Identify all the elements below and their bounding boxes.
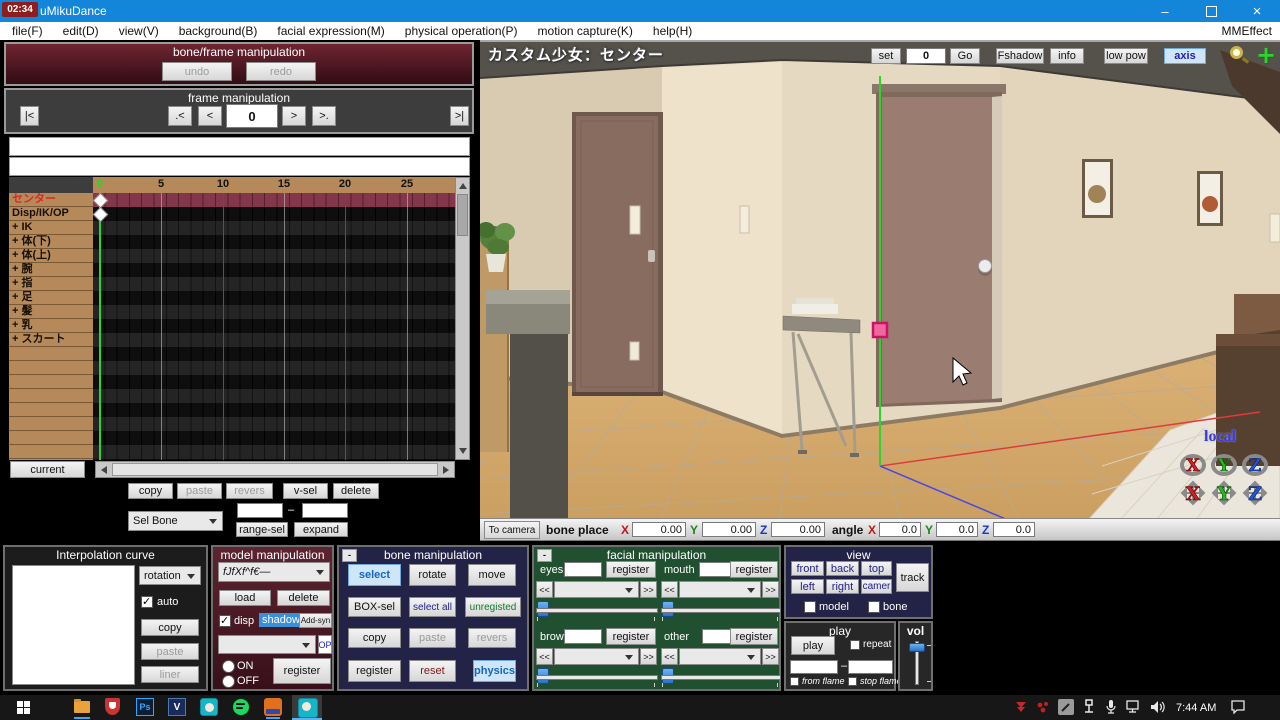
notification-center-icon[interactable]	[1230, 700, 1246, 714]
scroll-right-icon[interactable]	[443, 466, 449, 474]
undo-button[interactable]: undo	[162, 62, 232, 81]
view-left-button[interactable]: left	[791, 579, 824, 594]
timeline-tick: 10	[215, 178, 231, 190]
scroll-down-icon[interactable]	[459, 448, 467, 454]
3d-scene	[480, 42, 1280, 518]
model-register-button[interactable]: register	[273, 658, 331, 684]
frame-last-button[interactable]: >|	[450, 106, 469, 126]
unregisted-button[interactable]: unregisted	[465, 597, 521, 617]
brow-slider[interactable]	[536, 675, 658, 680]
rotate-x-control: X	[1182, 456, 1204, 476]
other-next-button[interactable]: >>	[762, 648, 779, 665]
angle-y-label: Y	[925, 523, 933, 537]
corner-wall	[662, 62, 782, 436]
eyes-next-button[interactable]: >>	[640, 581, 657, 598]
timeline-row-labels: センターDisp/IK/OP+ IK+ 体(下)+ 体(上)+ 腕+ 指+ 足+…	[9, 193, 93, 460]
taskbar-clock[interactable]: 7:44 AM	[1176, 695, 1216, 720]
interp-copy-button[interactable]: copy	[141, 619, 199, 636]
magnifier-icon[interactable]	[1230, 46, 1243, 59]
tray-network-icon[interactable]	[1126, 700, 1142, 714]
current-frame-button[interactable]: current	[10, 461, 85, 478]
frame-list-box-bottom[interactable]	[9, 157, 470, 176]
timeline-row-label[interactable]	[9, 445, 93, 459]
taskbar: Ps V 7:44 AM	[0, 695, 1280, 720]
model-manipulation-panel: model manipulation fJfXf^f€― load delete…	[211, 545, 334, 691]
taskbar-item-mmd[interactable]	[200, 698, 218, 716]
tl-revers-button[interactable]: revers	[226, 483, 273, 499]
taskbar-item-mmd-active[interactable]	[292, 695, 322, 720]
bone-manipulation-panel: - bone manipulation select rotate move B…	[337, 545, 529, 691]
angle-x-input[interactable]: 0.0	[879, 522, 921, 537]
bone-checkbox-label: bone	[883, 601, 907, 613]
light-switch	[1270, 214, 1280, 242]
svg-text:X: X	[1186, 456, 1200, 476]
facial-manipulation-panel: - facial manipulation eyes register << >…	[532, 545, 781, 691]
window-title: uMikuDance	[40, 0, 107, 22]
select-all-button[interactable]: select all	[409, 597, 456, 617]
timeline-row-label[interactable]: + 体(上)	[9, 249, 93, 263]
brow-prev-button[interactable]: <<	[536, 648, 553, 665]
menu-item-mmeffect[interactable]: MMEffect	[1222, 22, 1272, 40]
bone-register-button[interactable]: register	[348, 660, 401, 682]
mouth-prev-button[interactable]: <<	[661, 581, 678, 598]
mouth-register-button[interactable]: register	[730, 561, 778, 578]
tray-volume-icon[interactable]	[1150, 700, 1166, 714]
local-mode-label[interactable]: local	[1204, 428, 1236, 446]
model-manip-title: model manipulation	[213, 548, 332, 562]
timeline-row-label[interactable]: + 指	[9, 277, 93, 291]
other-prev-button[interactable]: <<	[661, 648, 678, 665]
tray-microphone-icon[interactable]	[1104, 699, 1118, 715]
frame-next-button[interactable]: >	[282, 106, 306, 126]
box-sel-button[interactable]: BOX-sel	[348, 597, 401, 617]
model-name-label: カスタム少女：センター	[488, 44, 664, 65]
go-button[interactable]: Go	[950, 48, 980, 64]
interpolation-channel-dropdown[interactable]: rotation	[139, 566, 201, 585]
bone-manip-title: bone manipulation	[339, 548, 527, 562]
menu-item[interactable]: edit(D)	[53, 22, 109, 40]
timeline-tick: 15	[276, 178, 292, 190]
timeline-tick: 20	[337, 178, 353, 190]
taskbar-item-v-app[interactable]: V	[168, 698, 186, 716]
timeline-row-label[interactable]: + 乳	[9, 319, 93, 333]
start-button[interactable]	[0, 695, 46, 720]
eyes-slider[interactable]	[536, 608, 658, 613]
svg-text:Z: Z	[1248, 483, 1262, 505]
angle-y-input[interactable]: 0.0	[936, 522, 978, 537]
timeline-tick: 5	[153, 178, 169, 190]
tl-copy-button[interactable]: copy	[128, 483, 173, 499]
menu-item[interactable]: file(F)	[2, 22, 53, 40]
angle-z-label: Z	[982, 523, 989, 537]
place-y-input[interactable]: 0.00	[702, 522, 756, 537]
light-switch	[630, 206, 640, 234]
eyes-register-button[interactable]: register	[606, 561, 656, 578]
view-top-button[interactable]: top	[861, 561, 892, 576]
timeline-row-label[interactable]	[9, 431, 93, 445]
auto-checkbox[interactable]	[141, 596, 153, 608]
model-select-dropdown[interactable]: fJfXf^f€―	[218, 562, 330, 582]
eyes-label: eyes	[540, 564, 563, 576]
timeline-row-label[interactable]: Disp/IK/OP	[9, 207, 93, 221]
place-x-input[interactable]: 0.00	[632, 522, 686, 537]
axis-rotate-controls[interactable]: X Y Z	[1180, 452, 1268, 478]
range-sel-button[interactable]: range-sel	[236, 522, 288, 537]
view-camer-button[interactable]: camer	[861, 579, 892, 594]
minimize-button[interactable]: –	[1142, 0, 1188, 22]
frame-prev-button[interactable]: <	[198, 106, 222, 126]
mouth-next-button[interactable]: >>	[762, 581, 779, 598]
menu-bar: file(F)edit(D)view(V)background(B)facial…	[0, 22, 1280, 40]
orange-app-icon	[266, 709, 280, 714]
timeline-row-label[interactable]	[9, 417, 93, 431]
place-z-label: Z	[760, 523, 767, 537]
tray-red-dots-icon[interactable]	[1036, 700, 1050, 714]
frame-panel-title: frame manipulation	[6, 91, 472, 105]
selected-bone-marker	[873, 323, 887, 337]
vol-panel: vol	[898, 621, 933, 691]
miku-icon	[205, 703, 214, 712]
place-y-label: Y	[690, 523, 698, 537]
view-right-button[interactable]: right	[826, 579, 859, 594]
view-title: view	[786, 548, 931, 562]
timeline-row-label[interactable]: + 髪	[9, 305, 93, 319]
interpolation-title: Interpolation curve	[5, 548, 206, 562]
tray-download-icon[interactable]	[1014, 700, 1028, 714]
folder-icon	[74, 701, 90, 713]
accessory-dropdown[interactable]	[218, 635, 316, 654]
facial-title: facial manipulation	[534, 548, 779, 562]
timeline-row-label[interactable]: + 足	[9, 291, 93, 305]
eyes-prev-button[interactable]: <<	[536, 581, 553, 598]
stop-flame-checkbox[interactable]	[848, 677, 857, 686]
move-x-control: X	[1182, 482, 1204, 505]
move-z-control: Z	[1244, 482, 1266, 505]
mouth-morph-dropdown[interactable]	[679, 581, 761, 598]
title-bar: 02:34 uMikuDance – ×	[0, 0, 1280, 22]
other-register-button[interactable]: register	[730, 628, 778, 645]
frame-line-5	[161, 193, 162, 460]
disp-label: disp	[234, 615, 254, 627]
view-track-button[interactable]: track	[896, 563, 929, 592]
eyes-value-input[interactable]	[564, 562, 602, 577]
maximize-icon	[1206, 6, 1217, 17]
model-delete-button[interactable]: delete	[277, 590, 330, 606]
off-label: OFF	[237, 675, 259, 687]
tl-delete-button[interactable]: delete	[333, 483, 379, 499]
bone-revers-button[interactable]: revers	[468, 628, 516, 648]
other-slider[interactable]	[661, 675, 781, 680]
menu-items: file(F)edit(D)view(V)background(B)facial…	[2, 22, 702, 40]
vol-title: vol	[900, 624, 931, 638]
taskbar-item-orange-app[interactable]	[264, 698, 282, 716]
center-door	[872, 84, 1006, 407]
tl-paste-button[interactable]: paste	[177, 483, 222, 499]
timeline-hscrollbar[interactable]	[95, 461, 455, 478]
set-button[interactable]: set	[871, 48, 901, 64]
left-door	[572, 112, 663, 396]
place-x-label: X	[621, 523, 629, 537]
bone-status-bar: To camera bone place X 0.00 Y 0.00 Z 0.0…	[480, 518, 1280, 541]
interp-paste-button[interactable]: paste	[141, 643, 199, 660]
redo-button[interactable]: redo	[246, 62, 316, 81]
tray-usb-icon[interactable]	[1082, 699, 1096, 715]
to-camera-button[interactable]: To camera	[484, 521, 540, 539]
timeline-row-label[interactable]: + IK	[9, 221, 93, 235]
bone-move-button[interactable]: move	[468, 564, 516, 586]
bone-place-label: bone place	[546, 523, 609, 537]
viewport-frame-input[interactable]: 0	[906, 48, 946, 64]
off-radio[interactable]	[222, 675, 235, 688]
timeline-row-label[interactable]: + 腕	[9, 263, 93, 277]
svg-text:X: X	[1186, 483, 1201, 505]
frame-line-10	[223, 193, 224, 460]
shadow-toggle[interactable]: shadow	[259, 613, 303, 627]
axis-move-controls[interactable]: X Y Z	[1180, 480, 1268, 506]
on-radio[interactable]	[222, 660, 235, 673]
menu-item[interactable]: view(V)	[109, 22, 169, 40]
frame-line-25	[407, 193, 408, 460]
angle-x-label: X	[868, 523, 876, 537]
keyframe-disp-ik-op[interactable]	[93, 207, 108, 223]
mouth-label: mouth	[664, 564, 695, 576]
angle-z-input[interactable]: 0.0	[993, 522, 1035, 537]
play-range-dash: –	[841, 660, 847, 672]
svg-text:Z: Z	[1249, 456, 1261, 476]
frame-manipulation-panel: frame manipulation |< .< < 0 > >. >|	[4, 88, 474, 134]
other-morph-dropdown[interactable]	[679, 648, 761, 665]
frame-next-key-button[interactable]: >.	[312, 106, 336, 126]
explorer-open-indicator	[74, 717, 90, 719]
orange-app-open-indicator	[266, 717, 280, 719]
brow-value-input[interactable]	[564, 629, 602, 644]
timeline-tick: 0	[92, 178, 108, 190]
view-back-button[interactable]: back	[826, 561, 859, 576]
timeline-vscrollbar[interactable]	[455, 177, 470, 460]
view-panel: view front back top track left right cam…	[784, 545, 933, 619]
menu-item[interactable]: facial expression(M)	[267, 22, 394, 40]
brow-morph-dropdown[interactable]	[554, 648, 639, 665]
taskbar-item-photoshop[interactable]: Ps	[136, 698, 154, 716]
fshadow-button[interactable]: Fshadow	[996, 48, 1044, 64]
scroll-left-icon[interactable]	[101, 466, 107, 474]
frame-first-button[interactable]: |<	[20, 106, 39, 126]
close-button[interactable]: ×	[1234, 0, 1280, 22]
taskbar-item-spotify[interactable]	[232, 698, 250, 716]
interpolation-canvas[interactable]	[12, 565, 135, 685]
timeline-row-label[interactable]	[9, 389, 93, 403]
vscroll-thumb[interactable]	[457, 194, 468, 236]
tray-pen-icon[interactable]	[1058, 699, 1074, 715]
timeline-row-label[interactable]	[9, 375, 93, 389]
view-front-button[interactable]: front	[791, 561, 824, 576]
frame-line-20	[345, 193, 346, 460]
viewport[interactable]: カスタム少女：センター set 0 Go Fshadow info low po…	[480, 40, 1280, 518]
timeline-row-label[interactable]	[9, 347, 93, 361]
timeline: 0510152025 センターDisp/IK/OP+ IK+ 体(下)+ 体(上…	[9, 177, 470, 478]
timeline-row-label[interactable]: + スカート	[9, 333, 93, 347]
range-start-input[interactable]	[237, 503, 283, 518]
timeline-corner-cell	[9, 177, 93, 193]
other-label: other	[664, 631, 689, 643]
menu-item[interactable]: motion capture(K)	[528, 22, 643, 40]
timeline-row-label[interactable]: センター	[9, 193, 93, 207]
bone-rotate-button[interactable]: rotate	[409, 564, 456, 586]
frame-line-15	[284, 193, 285, 460]
timeline-row-label[interactable]	[9, 361, 93, 375]
range-dash: –	[288, 504, 294, 516]
range-end-input[interactable]	[302, 503, 348, 518]
sel-bone-dropdown[interactable]: Sel Bone	[128, 511, 223, 531]
bone-reset-button[interactable]: reset	[409, 660, 456, 682]
add-model-plus-icon[interactable]: +	[1256, 41, 1276, 69]
model-checkbox-label: model	[819, 601, 849, 613]
model-load-button[interactable]: load	[219, 590, 271, 606]
frame-prev-key-button[interactable]: .<	[168, 106, 192, 126]
timeline-ruler[interactable]: 0510152025	[93, 177, 455, 193]
taskbar-item-explorer[interactable]	[72, 698, 92, 715]
repeat-checkbox[interactable]	[850, 640, 860, 650]
model-checkbox[interactable]	[804, 601, 816, 613]
eyes-morph-dropdown[interactable]	[554, 581, 639, 598]
disp-checkbox[interactable]	[219, 615, 231, 627]
vol-slider-handle[interactable]	[909, 643, 925, 652]
op-button[interactable]: OP	[318, 635, 332, 654]
play-button[interactable]: play	[791, 636, 835, 655]
angle-label: angle	[832, 523, 863, 537]
play-from-input[interactable]	[790, 660, 838, 674]
svg-text:Y: Y	[1217, 456, 1231, 476]
recording-time-badge: 02:34	[2, 2, 38, 17]
low-pow-button[interactable]: low pow	[1104, 48, 1148, 64]
v-app-icon: V	[174, 702, 181, 713]
axis-button[interactable]: axis	[1164, 48, 1206, 64]
interpolation-curve-panel: Interpolation curve rotation auto copy p…	[3, 545, 208, 691]
rotate-y-control: Y	[1213, 456, 1235, 476]
play-to-input[interactable]	[848, 660, 893, 674]
picture-frame-2	[1197, 171, 1223, 226]
menu-item[interactable]: physical operation(P)	[395, 22, 528, 40]
auto-label: auto	[157, 596, 178, 608]
physics-button[interactable]: physics	[473, 660, 516, 682]
windows-logo-icon	[17, 701, 30, 714]
maximize-button[interactable]	[1188, 0, 1234, 22]
bone-copy-button[interactable]: copy	[348, 628, 401, 648]
timeline-tick: 25	[399, 178, 415, 190]
from-flame-label: from flame	[802, 676, 845, 686]
on-label: ON	[237, 660, 254, 672]
interp-liner-button[interactable]: liner	[141, 666, 199, 683]
picture-frame-1	[1082, 159, 1113, 218]
timeline-row-label[interactable]: + 体(下)	[9, 235, 93, 249]
bone-select-button[interactable]: select	[348, 564, 401, 586]
move-y-control: Y	[1213, 482, 1235, 505]
bone-checkbox[interactable]	[868, 601, 880, 613]
brow-label: brow	[540, 631, 564, 643]
brow-next-button[interactable]: >>	[640, 648, 657, 665]
tl-vsel-button[interactable]: v-sel	[283, 483, 328, 499]
brow-register-button[interactable]: register	[606, 628, 656, 645]
frame-number-input[interactable]: 0	[226, 104, 278, 128]
expand-button[interactable]: expand	[294, 522, 348, 537]
scroll-up-icon[interactable]	[459, 183, 467, 189]
mouth-slider[interactable]	[661, 608, 781, 613]
rotate-z-control: Z	[1244, 456, 1266, 476]
frame-list-box-top[interactable]	[9, 137, 470, 156]
timeline-grid[interactable]	[93, 193, 455, 460]
menu-item[interactable]: help(H)	[643, 22, 702, 40]
svg-text:Y: Y	[1216, 483, 1231, 505]
repeat-label: repeat	[863, 639, 891, 650]
stop-flame-label: stop flame	[860, 676, 902, 686]
hscroll-thumb[interactable]	[112, 463, 438, 476]
selected-row-highlight	[93, 193, 455, 207]
play-panel: play play repeat – from flame stop flame	[784, 621, 896, 691]
bone-frame-panel-title: bone/frame manipulation	[6, 45, 472, 59]
info-button[interactable]: info	[1050, 48, 1084, 64]
place-z-input[interactable]: 0.00	[771, 522, 825, 537]
timeline-row-label[interactable]	[9, 403, 93, 417]
taskbar-item-brave[interactable]	[104, 698, 122, 716]
bone-frame-manipulation-panel: bone/frame manipulation undo redo	[4, 42, 474, 86]
light-switch	[740, 206, 749, 233]
current-frame-line	[99, 193, 101, 460]
photoshop-icon: Ps	[139, 702, 150, 712]
bone-paste-button[interactable]: paste	[409, 628, 456, 648]
menu-item[interactable]: background(B)	[169, 22, 268, 40]
from-flame-checkbox[interactable]	[790, 677, 799, 686]
add-syn-button[interactable]: Add-syn	[299, 613, 332, 628]
